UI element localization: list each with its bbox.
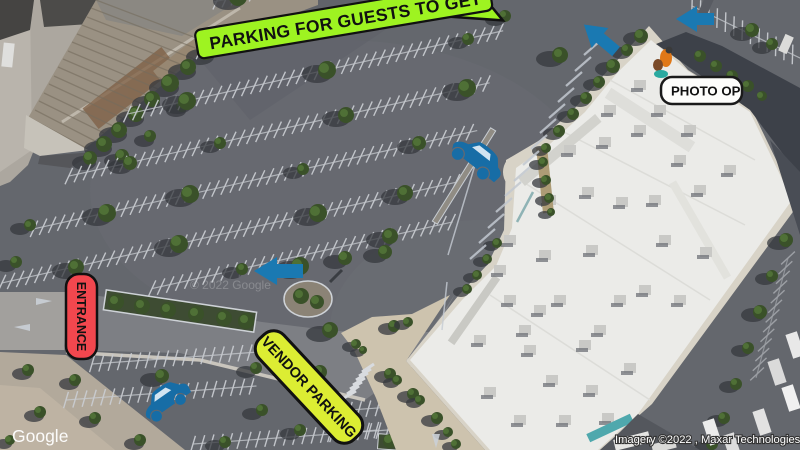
svg-text:© 2022 Google: © 2022 Google [190,278,271,292]
svg-text:Imagery ©2022 , Maxar Technolo: Imagery ©2022 , Maxar Technologies [615,434,800,446]
svg-text:Google: Google [12,426,68,446]
svg-text:ENTRANCE: ENTRANCE [74,282,88,351]
svg-text:PHOTO OP: PHOTO OP [671,84,741,99]
